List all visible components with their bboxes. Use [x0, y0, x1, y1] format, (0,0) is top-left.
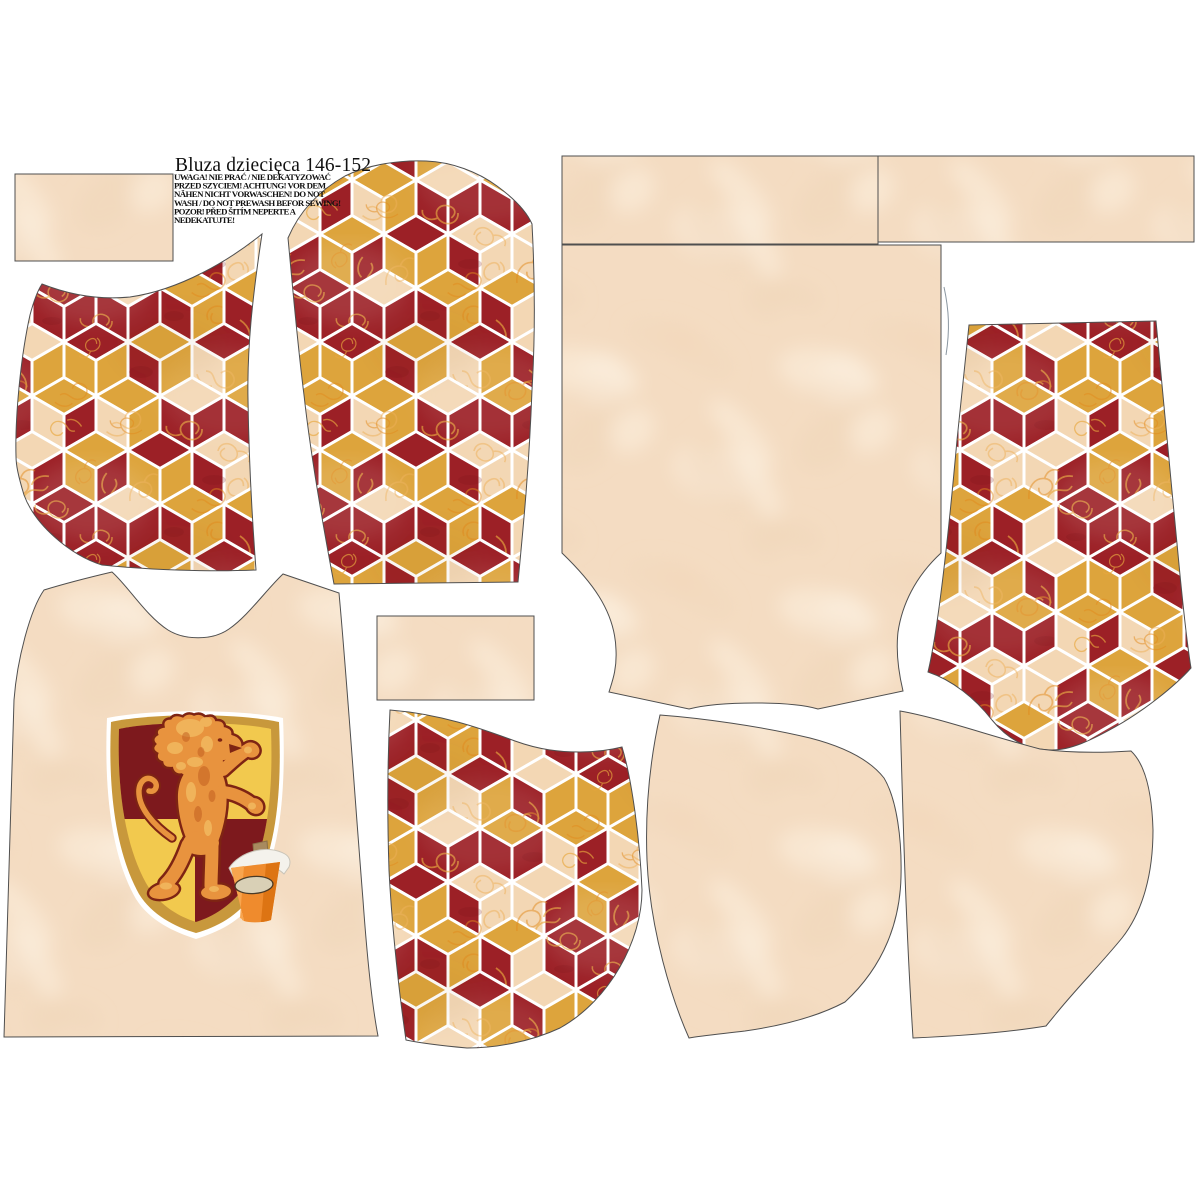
svg-text:NEDEKATUJTE!: NEDEKATUJTE! [174, 215, 235, 225]
